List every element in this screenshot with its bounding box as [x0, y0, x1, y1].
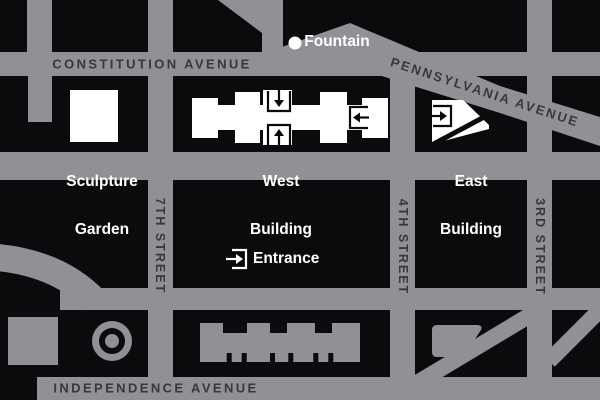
city-block [0, 0, 27, 52]
city-block [0, 288, 60, 310]
city-block [552, 0, 600, 52]
city-block [0, 377, 37, 400]
notched-building-footprint [200, 323, 360, 362]
notch [223, 323, 247, 333]
east-building-label-block [415, 180, 527, 288]
west-building-pavilion [235, 92, 260, 143]
notch [227, 353, 232, 362]
street-stub [28, 76, 52, 122]
circular-building-footprint [92, 321, 132, 361]
ring-center [105, 334, 119, 348]
fountain-dot-icon [289, 37, 302, 50]
nga-map: CONSTITUTION AVENUE PENNSYLVANIA AVENUE … [0, 0, 600, 400]
square-building-footprint [70, 90, 118, 142]
map-canvas [0, 0, 600, 400]
notch [242, 353, 247, 362]
square-building-footprint-south [8, 317, 58, 365]
city-block [52, 0, 148, 52]
west-building-pavilion [320, 92, 347, 143]
notch [288, 353, 293, 362]
notch [270, 353, 275, 362]
notch [270, 323, 287, 333]
west-building-pavilion [192, 98, 218, 138]
city-block [552, 180, 600, 288]
notch [328, 353, 333, 362]
notch [315, 323, 332, 333]
west-building-label-block [173, 180, 390, 288]
notch [313, 353, 318, 362]
